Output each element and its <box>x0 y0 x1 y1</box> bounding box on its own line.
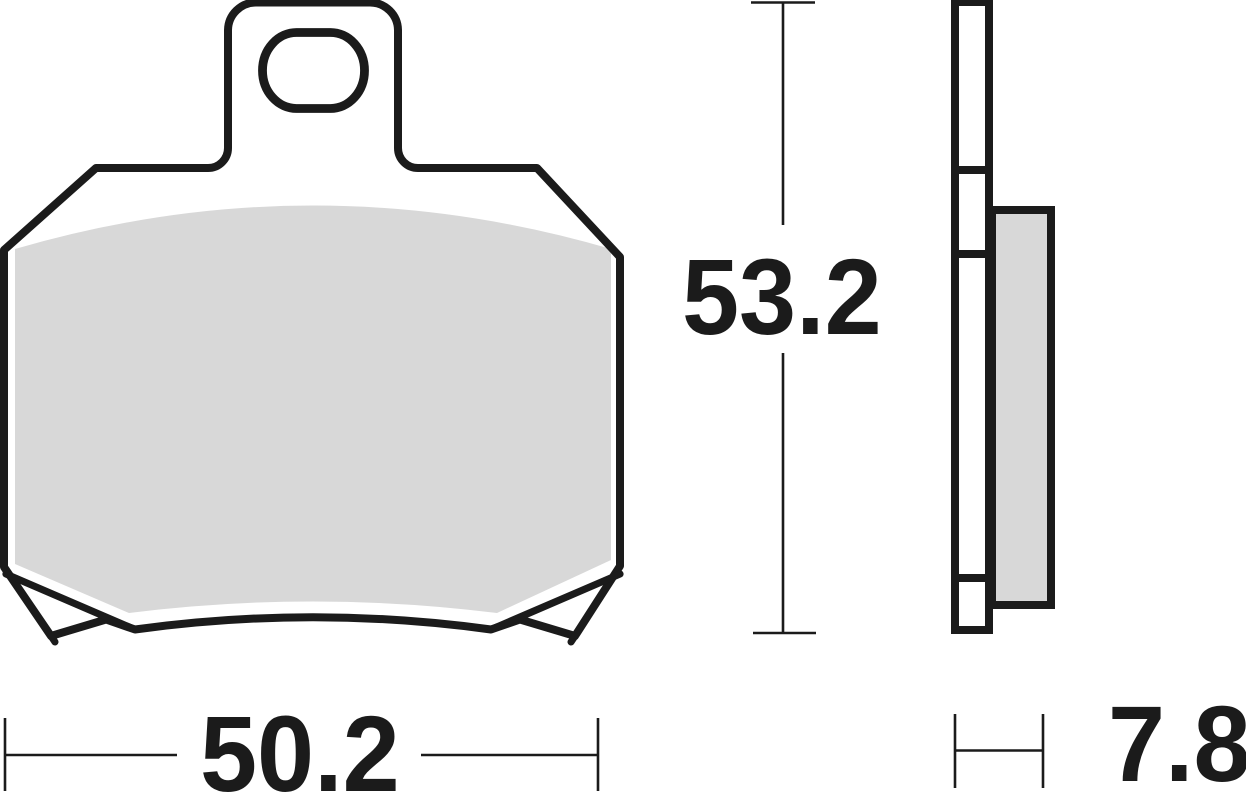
svg-text:53.2: 53.2 <box>682 238 882 358</box>
svg-text:50.2: 50.2 <box>200 695 400 793</box>
svg-text:7.8: 7.8 <box>1108 685 1246 793</box>
